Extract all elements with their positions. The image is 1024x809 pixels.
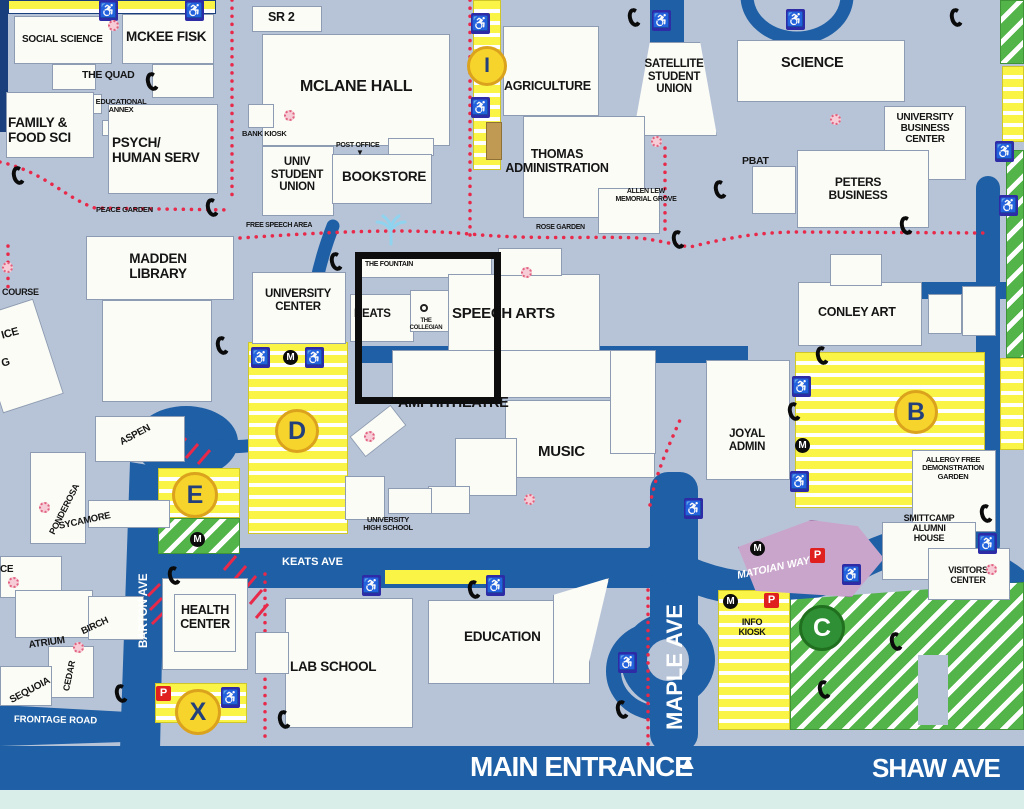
wheelchair-icon: ♿ [486, 575, 505, 596]
pay-badge: P [810, 548, 825, 563]
label-educational-annex: EDUCATIONAL ANNEX [86, 98, 156, 115]
label-rose-garden: ROSE GARDEN [536, 224, 585, 232]
info-point-marker: I [467, 46, 507, 86]
label-univ-student-union: UNIV STUDENT UNION [268, 156, 326, 194]
poi-marker-icon [524, 494, 535, 505]
building-pbat [752, 166, 796, 214]
poi-marker-icon [2, 262, 13, 273]
label-peters-business: PETERS BUSINESS [806, 176, 910, 202]
label-joyal-admin: JOYAL ADMIN [716, 428, 778, 453]
poi-marker-icon [364, 431, 375, 442]
poi-marker-icon [986, 564, 997, 575]
poi-marker-icon [39, 502, 50, 513]
wheelchair-icon: ♿ [362, 575, 381, 596]
building-university-high-school [345, 476, 385, 520]
building-agriculture [503, 26, 599, 116]
label-free-speech-area: FREE SPEECH AREA [246, 222, 312, 230]
building-conley-art-annex [928, 294, 962, 334]
label-bookstore: BOOKSTORE [342, 170, 426, 185]
label-music: MUSIC [538, 444, 585, 461]
poi-marker-icon [651, 136, 662, 147]
label-pbat: PBAT [742, 156, 769, 168]
label-social-science: SOCIAL SCIENCE [22, 34, 103, 45]
building-conley-art-tower [830, 254, 882, 286]
fountain-icon [374, 214, 408, 248]
label-bank-kiosk: BANK KIOSK [242, 130, 287, 138]
label-info-kiosk: INFO KIOSK [722, 618, 782, 638]
label-the-quad: THE QUAD [82, 70, 134, 82]
road-label-frontage-road: FRONTAGE ROAD [14, 714, 97, 726]
label-university-center: UNIVERSITY CENTER [258, 288, 338, 313]
label-madden-library: MADDEN LIBRARY [108, 252, 208, 282]
meter-badge: M [750, 541, 765, 556]
label-psych-human-serv: PSYCH/ HUMAN SERV [112, 136, 200, 166]
wheelchair-icon: ♿ [786, 9, 805, 30]
wheelchair-icon: ♿ [99, 0, 118, 21]
label-health-center: HEALTH CENTER [176, 604, 234, 632]
wheelchair-icon: ♿ [471, 97, 490, 118]
meter-badge: M [190, 532, 205, 547]
poi-marker-icon [73, 642, 84, 653]
post-office-marker: ▼ [356, 149, 364, 158]
building-bank-kiosk [248, 104, 274, 128]
building-madden-library-south [102, 300, 212, 402]
label-sr2: SR 2 [268, 11, 295, 25]
poi-marker-icon [521, 267, 532, 278]
label-allergy-garden: ALLERGY FREE DEMONSTRATION GARDEN [914, 456, 992, 481]
label-peace-garden: PEACE GARDEN [96, 206, 153, 214]
label-mclane-hall: MCLANE HALL [300, 78, 412, 96]
wheelchair-icon: ♿ [995, 141, 1014, 162]
building-music-wing [610, 350, 656, 454]
building-east-annex [962, 286, 996, 336]
meter-badge: M [723, 594, 738, 609]
poi-marker-icon [108, 20, 119, 31]
pay-badge: P [156, 686, 171, 701]
wheelchair-icon: ♿ [471, 13, 490, 34]
lot-e-marker: E [172, 472, 218, 518]
road-label-barton-ave: BARTON AVE [138, 573, 150, 648]
label-university-high-school: UNIVERSITY HIGH SCHOOL [352, 516, 424, 533]
road-label-keats-ave: KEATS AVE [282, 556, 343, 568]
poi-marker-icon [284, 110, 295, 121]
wheelchair-icon: ♿ [652, 10, 671, 31]
highlight-rectangle [355, 252, 501, 404]
meter-badge: M [283, 350, 298, 365]
lot-d-marker: D [275, 409, 319, 453]
wheelchair-icon: ♿ [978, 533, 997, 554]
wheelchair-icon: ♿ [792, 376, 811, 397]
label-course-fragment: COURSE [2, 288, 39, 298]
road-label-shaw-ave: SHAW AVE [872, 753, 1000, 784]
wheelchair-icon: ♿ [618, 652, 637, 673]
label-conley-art: CONLEY ART [818, 306, 896, 320]
wheelchair-icon: ♿ [221, 687, 240, 708]
road-label-main-entrance: MAIN ENTRANCE [470, 751, 692, 783]
poi-marker-icon [8, 577, 19, 588]
lot-c-marker: C [799, 605, 845, 651]
wheelchair-icon: ♿ [684, 498, 703, 519]
label-education: EDUCATION [464, 630, 541, 645]
label-ce-fragment: CE [0, 564, 13, 575]
label-satellite-student-union: SATELLITE STUDENT UNION [634, 58, 714, 96]
lot-x-marker: X [175, 689, 221, 735]
building-university-high-school [388, 488, 432, 514]
building-joyal-admin [706, 360, 790, 480]
label-allen-lew: ALLEN LEW MEMORIAL GROVE [606, 188, 686, 203]
label-thomas-administration: THOMAS ADMINISTRATION [498, 148, 616, 176]
wheelchair-icon: ♿ [999, 195, 1018, 216]
building-lab-school-wing [255, 632, 289, 674]
wheelchair-icon: ♿ [790, 471, 809, 492]
label-university-business-center: UNIVERSITY BUSINESS CENTER [884, 112, 966, 145]
road-label-maple-ave: MAPLE AVE [662, 604, 688, 730]
north-arrow: ▲ [678, 752, 698, 775]
pay-badge: P [764, 593, 779, 608]
label-smittcamp: SMITTCAMP ALUMNI HOUSE [896, 514, 962, 544]
wheelchair-icon: ♿ [305, 347, 324, 368]
label-family-food-sci: FAMILY & FOOD SCI [8, 116, 71, 146]
meter-badge: M [795, 438, 810, 453]
label-science: SCIENCE [781, 56, 843, 72]
label-agriculture: AGRICULTURE [504, 80, 591, 94]
wheelchair-icon: ♿ [251, 347, 270, 368]
wheelchair-icon: ♿ [185, 0, 204, 21]
campus-map: SOCIAL SCIENCE MCKEE FISK THE QUAD EDUCA… [0, 0, 1024, 809]
building-aspen [95, 416, 185, 462]
building-mckee-fisk-wing [152, 64, 214, 98]
building-music-wing [428, 486, 470, 514]
wheelchair-icon: ♿ [842, 564, 861, 585]
poi-marker-icon [830, 114, 841, 125]
lot-b-marker: B [894, 390, 938, 434]
label-lab-school: LAB SCHOOL [290, 660, 376, 675]
label-mckee-fisk: MCKEE FISK [126, 30, 206, 45]
